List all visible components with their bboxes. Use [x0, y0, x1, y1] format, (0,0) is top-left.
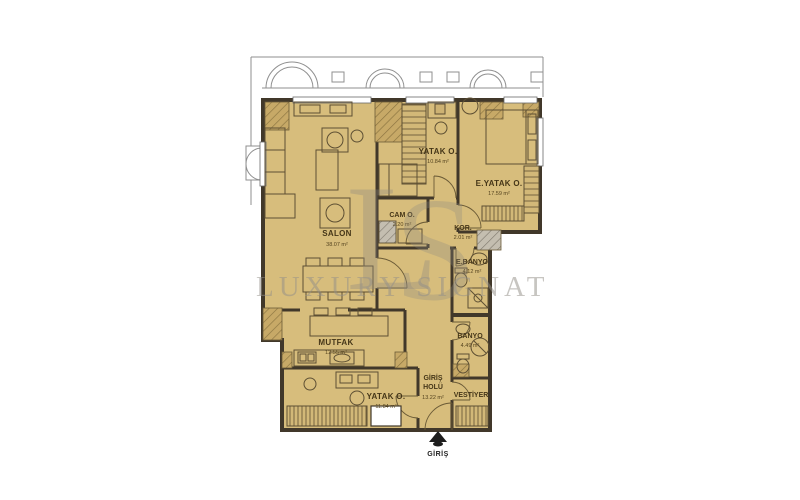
ebeveyn-yatak-odasi-label: E.YATAK O.	[476, 179, 523, 188]
floor-plan-page: { "watermark": { "monogram_left": "L", "…	[0, 0, 800, 500]
ebeveyn-yatak-odasi-area: 17.59 m²	[488, 191, 510, 197]
yatak-odasi-2-area: 11.84 m²	[375, 404, 396, 410]
banyo-area: 4.49 m²	[461, 343, 480, 349]
dresser	[482, 206, 524, 221]
vestiyer-label: VESTİYER	[454, 391, 489, 399]
camasir-odasi-label: CAM O.	[389, 212, 414, 219]
closet	[456, 406, 488, 426]
salon-area: 38.07 m²	[326, 242, 348, 248]
salon-label: SALON	[322, 229, 352, 238]
floor-plan-drawing: SALON 38.07 m² YATAK O. 10.84 m² E.YATAK…	[0, 0, 800, 500]
corner-column	[477, 230, 501, 250]
mutfak-area: 12.55 m²	[325, 350, 347, 356]
wardrobe	[287, 406, 367, 426]
ebeveyn-banyo-label: E.BANYO	[456, 259, 488, 266]
camasir-odasi-area: 2.20 m²	[393, 222, 412, 228]
wardrobe	[524, 166, 539, 213]
entrance-marker: GİRİŞ	[427, 431, 449, 458]
koridor-area: 2.01 m²	[454, 235, 473, 241]
giris-holu-area: 13.22 m²	[422, 395, 444, 401]
banyo-label: BANYO	[457, 333, 483, 340]
entrance-arrow-icon	[429, 431, 447, 442]
mutfak-label: MUTFAK	[318, 338, 353, 347]
giris-holu-label-1: GİRİŞ	[423, 374, 442, 382]
giris-holu-label-2: HOLÜ	[423, 382, 443, 391]
yatak-odasi-area: 10.84 m²	[427, 159, 449, 165]
koridor-label: KOR.	[454, 225, 472, 232]
yatak-odasi-label: YATAK O.	[419, 147, 458, 156]
room-giris-holu: GİRİŞ HOLÜ 13.22 m²	[422, 374, 444, 401]
wardrobe	[402, 104, 426, 184]
entrance-label: GİRİŞ	[427, 450, 449, 458]
ebeveyn-banyo-area: 4.12 m²	[463, 269, 482, 275]
yatak-odasi-2-label: YATAK O.	[367, 392, 406, 401]
room-vestiyer: VESTİYER	[454, 391, 489, 426]
